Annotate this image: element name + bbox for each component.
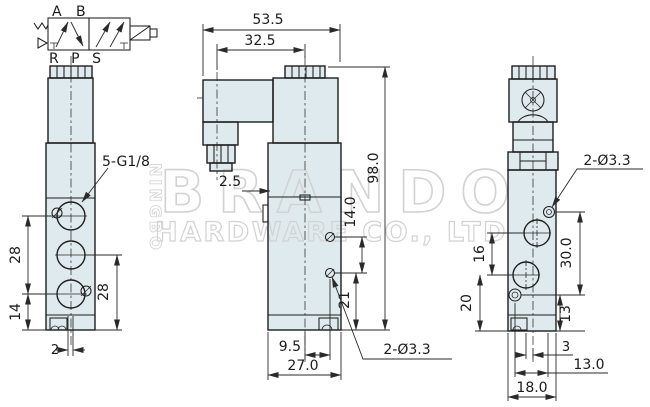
symbol-ports-bottom-label: R P S bbox=[49, 51, 105, 67]
dim-hole-to-bottom: 13 bbox=[558, 305, 574, 323]
dim-hole-to-bottom: 21 bbox=[337, 291, 353, 309]
dim-axis-offset: 32.5 bbox=[244, 33, 275, 49]
dim-width: 18.0 bbox=[516, 380, 547, 396]
dim-right-port-pitch: 28 bbox=[96, 283, 112, 301]
dim-axis-to-hole: 9.5 bbox=[279, 339, 301, 355]
dim-offset: 3 bbox=[562, 340, 570, 355]
side-hole-label: 2-Ø3.3 bbox=[383, 342, 430, 358]
watermark-city: NINGBO bbox=[146, 163, 165, 253]
dim-overall-height: 98.0 bbox=[366, 152, 382, 183]
watermark: BRANDO HARDWARE CO., LTD NINGBO bbox=[146, 158, 524, 253]
thread-label: 5-G1/8 bbox=[102, 154, 150, 170]
dim-depth: 27.0 bbox=[287, 358, 318, 374]
dim-port-pitch: 28 bbox=[8, 246, 24, 264]
dim-bottom-port: 20 bbox=[459, 294, 475, 312]
dim-hole-pitch-h: 13.0 bbox=[573, 357, 604, 373]
valve-technical-drawing: BRANDO HARDWARE CO., LTD NINGBO A B R P … bbox=[0, 0, 650, 407]
dim-port-pitch: 16 bbox=[472, 245, 488, 263]
watermark-brand: BRANDO bbox=[160, 158, 524, 226]
dim-step: 2.5 bbox=[219, 174, 241, 190]
dim-bottom-port: 14 bbox=[8, 303, 24, 321]
dim-hole-pitch: 14.0 bbox=[343, 196, 359, 227]
symbol-ports-top-label: A B bbox=[52, 4, 91, 20]
dim-hole-pitch-v: 30.0 bbox=[559, 237, 575, 268]
dim-slot-width: 2 bbox=[51, 343, 59, 358]
dim-overall-width: 53.5 bbox=[252, 12, 283, 28]
back-hole-label: 2-Ø3.3 bbox=[583, 153, 630, 169]
